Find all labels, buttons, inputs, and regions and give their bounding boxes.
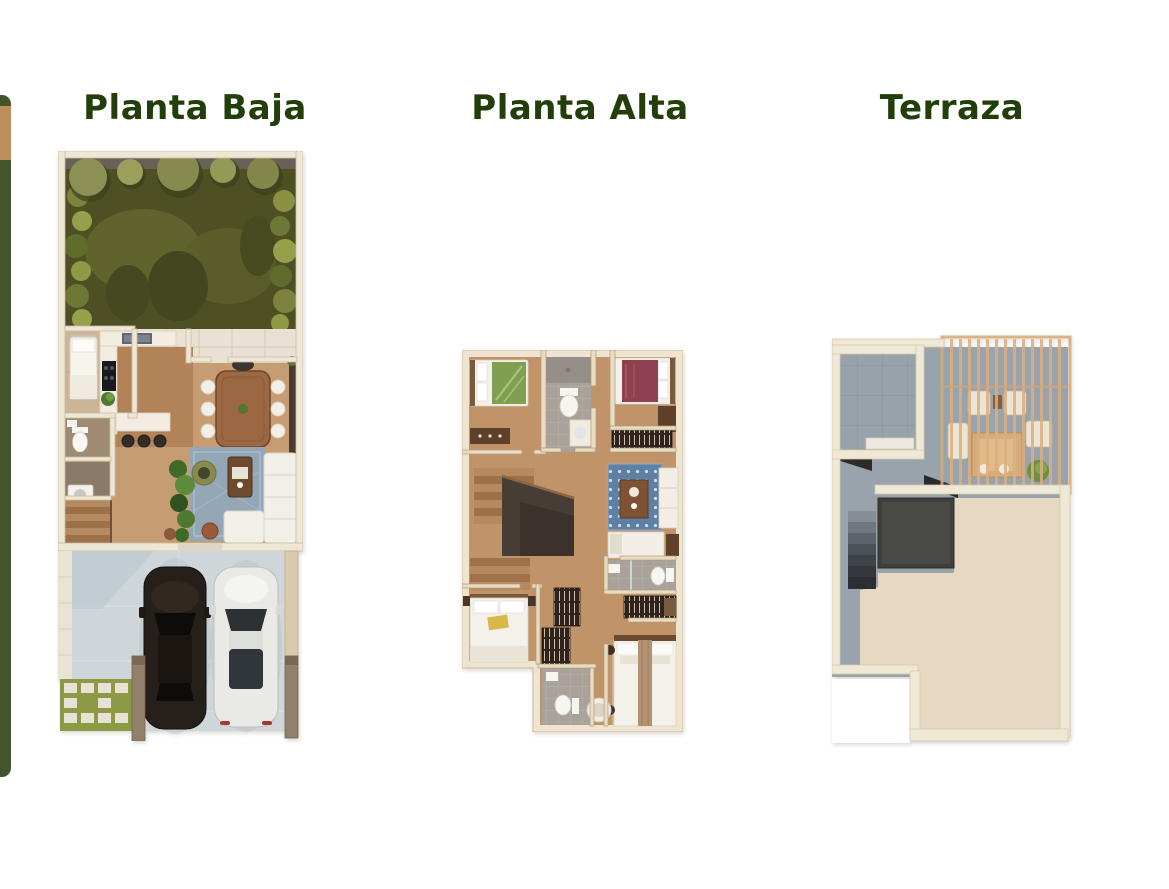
floor-plans-page: Planta Baja Planta Alta Terraza [0,0,1169,889]
closet-1 [554,588,580,626]
bedroom-3 [463,594,537,662]
terrace-stairs [848,500,876,589]
planta-alta-floorplan [462,350,683,732]
partial-card-strip [0,95,11,777]
bedroom-2 [612,358,676,448]
partial-card-tan-block [0,106,11,160]
garden [64,151,297,332]
white-car [209,567,283,727]
planta-alta-title: Planta Alta [471,88,688,128]
terrace-room [840,354,916,450]
bathroom-1 [545,357,591,452]
black-car [139,567,211,729]
grass-pavers [60,679,132,731]
closet-2 [542,628,570,666]
outside-cut [832,679,910,743]
planta-baja-floorplan [58,151,303,741]
side-wall [285,551,298,656]
tv-room [608,464,679,558]
bathroom-2 [604,560,676,590]
planta-baja-title: Planta Baja [83,88,307,128]
bathroom-3 [542,668,590,725]
house-block [58,151,303,551]
driveway [58,551,298,741]
pergola [942,337,1070,493]
skylight [878,498,954,568]
entry-door [178,543,222,551]
terraza-floorplan [832,335,1073,743]
terraza-title: Terraza [880,88,1024,128]
ground-stairs [65,500,112,543]
